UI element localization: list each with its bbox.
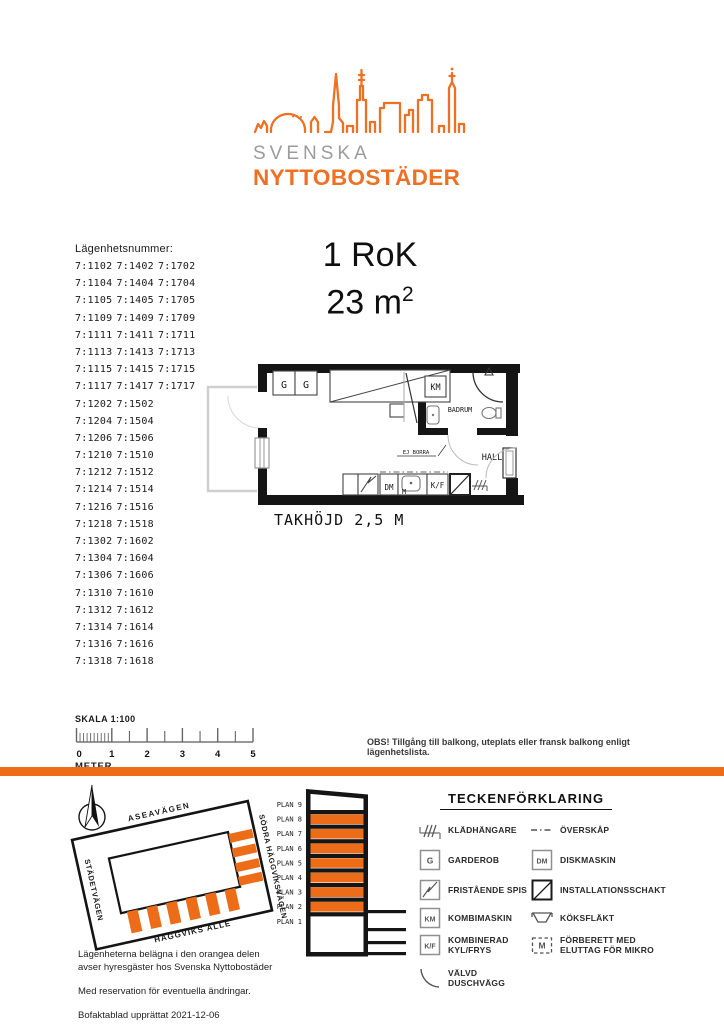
apartment-number: 7:1612 — [117, 605, 159, 622]
orange-divider — [0, 767, 724, 776]
apartment-row: 7:13167:1616 — [75, 639, 205, 656]
logo-text-svenska: SVENSKA — [253, 143, 469, 165]
apartment-row: 7:12067:1506 — [75, 433, 205, 450]
box-diagonal-icon — [530, 878, 554, 902]
legend-item: KMKOMBIMASKIN — [418, 906, 534, 930]
apartment-number: 7:1402 — [117, 261, 159, 278]
svg-text:K/F: K/F — [431, 481, 445, 490]
badrum-label: BADRUM — [448, 406, 473, 414]
apartment-number: 7:1506 — [117, 433, 159, 450]
apartment-number: 7:1214 — [75, 484, 117, 501]
apartment-number: 7:1318 — [75, 656, 117, 673]
legend-item: MFÖRBERETT MED ELUTTAG FÖR MIKRO — [530, 933, 678, 957]
footer-note-orange: Lägenheterna belägna i den orangea delen… — [78, 948, 318, 974]
apartment-number: 7:1113 — [75, 347, 117, 364]
legend-item: KLÄDHÄNGARE — [418, 818, 534, 842]
apartment-number: 7:1604 — [117, 553, 159, 570]
svg-text:G: G — [281, 380, 287, 391]
apartment-row: 7:12107:1510 — [75, 450, 205, 467]
apartment-row: 7:12127:1512 — [75, 467, 205, 484]
floor-bar — [311, 873, 364, 883]
apartment-number: 7:1212 — [75, 467, 117, 484]
hanger-icon — [418, 818, 442, 842]
floor-bar — [311, 902, 364, 912]
apartment-number: 7:1316 — [75, 639, 117, 656]
plan-label: PLAN 1 — [277, 918, 302, 926]
legend: TECKENFÖRKLARING KLÄDHÄNGAREGGARDEROBFRI… — [416, 790, 678, 990]
svg-text:M: M — [402, 488, 406, 496]
apartment-row: 7:13127:1612 — [75, 605, 205, 622]
apartment-row: 7:12147:1514 — [75, 484, 205, 501]
legend-item-label: VÄLVD DUSCHVÄGG — [448, 968, 534, 989]
kitchen-units: DM M K/F — [343, 472, 487, 496]
apartment-number: 7:1705 — [158, 295, 200, 312]
legend-item-label: ÖVERSKÅP — [560, 825, 678, 836]
legend-item-label: DISKMASKIN — [560, 855, 678, 866]
apartment-row: 7:11157:14157:1715 — [75, 364, 205, 381]
block-outline — [72, 801, 272, 949]
apartment-row: 7:13147:1614 — [75, 622, 205, 639]
highlighted-building-stripes — [115, 829, 268, 934]
apartment-row: 7:11117:14117:1711 — [75, 330, 205, 347]
apartment-number: 7:1411 — [117, 330, 159, 347]
ej-borra-note: EJ BORRA — [397, 445, 446, 456]
apartment-number: 7:1616 — [117, 639, 159, 656]
site-map: ASEAVÄGEN HÄGGVIKS ALLÉ SÖDRA HÄGGVIKSVÄ… — [58, 783, 288, 961]
apartment-row: 7:11047:14047:1704 — [75, 278, 205, 295]
footer-note-date: Bofaktablad upprättat 2021-12-06 — [78, 1009, 318, 1022]
floor-plan: G G KM BADRUM HALL — [200, 360, 545, 512]
apartment-number: 7:1115 — [75, 364, 117, 381]
legend-item: FRISTÅENDE SPIS — [418, 878, 534, 902]
apartment-number: 7:1111 — [75, 330, 117, 347]
legend-item-label: KOMBINERAD KYL/FRYS — [448, 935, 534, 956]
footer-notes: Lägenheterna belägna i den orangea delen… — [78, 948, 318, 1024]
arc-icon — [418, 966, 442, 990]
apartment-number: 7:1218 — [75, 519, 117, 536]
svg-text:EJ BORRA: EJ BORRA — [403, 450, 430, 456]
legend-item: KÖKSFLÄKT — [530, 906, 678, 930]
logo-text-nyttobostader: NYTTOBOSTÄDER — [253, 165, 469, 191]
legend-item-label: KÖKSFLÄKT — [560, 913, 678, 924]
apartment-number: 7:1709 — [158, 313, 200, 330]
apartment-number-rows: 7:11027:14027:17027:11047:14047:17047:11… — [75, 261, 205, 674]
apartment-number: 7:1204 — [75, 416, 117, 433]
apartment-row: 7:11027:14027:1702 — [75, 261, 205, 278]
unit-title: 1 RoK 23 m2 — [250, 236, 490, 322]
scale-tick-label: 3 — [180, 749, 185, 760]
apartment-number: 7:1711 — [158, 330, 200, 347]
ceiling-height-note: TAKHÖJD 2,5 M — [274, 511, 404, 529]
legend-glyph: DM — [537, 859, 548, 866]
scale-tick-label: 1 — [109, 749, 115, 760]
legend-item: GGARDEROB — [418, 848, 534, 872]
apartment-number: 7:1614 — [117, 622, 159, 639]
apartment-number: 7:1304 — [75, 553, 117, 570]
apartment-number: 7:1717 — [158, 381, 200, 398]
apartment-number: 7:1310 — [75, 588, 117, 605]
company-logo: SVENSKA NYTTOBOSTÄDER — [253, 60, 469, 191]
apartment-number: 7:1409 — [117, 313, 159, 330]
svg-text:G: G — [303, 380, 309, 391]
building-elevation: PLAN 9PLAN 8PLAN 7PLAN 6PLAN 5PLAN 4PLAN… — [276, 786, 408, 962]
apartment-number: 7:1504 — [117, 416, 159, 433]
wardrobe-boxes: G G — [273, 371, 317, 395]
apartment-number: 7:1413 — [117, 347, 159, 364]
plan-label: PLAN 3 — [277, 889, 302, 897]
apartment-row: 7:13027:1602 — [75, 536, 205, 553]
apartment-number: 7:1105 — [75, 295, 117, 312]
footer-note-reservation: Med reservation för eventuella ändringar… — [78, 985, 318, 998]
hall-label: HALL — [482, 453, 502, 463]
apartment-row: 7:12187:1518 — [75, 519, 205, 536]
apartment-number: 7:1102 — [75, 261, 117, 278]
apartment-number: 7:1713 — [158, 347, 200, 364]
apartment-row: 7:12027:1502 — [75, 399, 205, 416]
svg-text:KM: KM — [430, 383, 440, 393]
scale-tick-label: 4 — [215, 749, 221, 760]
apartment-number: 7:1417 — [117, 381, 159, 398]
scale-tick-label: 5 — [250, 749, 256, 760]
apartment-row: 7:13047:1604 — [75, 553, 205, 570]
floor-bar — [311, 829, 364, 839]
apartment-number: 7:1306 — [75, 570, 117, 587]
washer-box: KM — [425, 376, 446, 397]
hood-icon — [530, 906, 554, 930]
apartment-number: 7:1510 — [117, 450, 159, 467]
box-icon: G — [418, 848, 442, 872]
apartment-number: 7:1216 — [75, 502, 117, 519]
apartment-number: 7:1104 — [75, 278, 117, 295]
legend-item: INSTALLATIONSSCHAKT — [530, 878, 678, 902]
legend-item-label: KOMBIMASKIN — [448, 913, 534, 924]
apartment-row: 7:13067:1606 — [75, 570, 205, 587]
balcony-outline — [208, 387, 257, 491]
apartment-number: 7:1206 — [75, 433, 117, 450]
apartment-number-list: Lägenhetsnummer: 7:11027:14027:17027:110… — [75, 243, 205, 674]
sink — [427, 406, 439, 424]
apartment-number: 7:1610 — [117, 588, 159, 605]
apartment-number: 7:1202 — [75, 399, 117, 416]
floor-bar — [311, 844, 364, 854]
apartment-number: 7:1312 — [75, 605, 117, 622]
apartment-number: 7:1109 — [75, 313, 117, 330]
legend-item: VÄLVD DUSCHVÄGG — [418, 966, 534, 990]
street-bottom: HÄGGVIKS ALLÉ — [153, 919, 232, 945]
apartment-number: 7:1502 — [117, 399, 159, 416]
legend-item-label: FRISTÅENDE SPIS — [448, 885, 534, 896]
scale-label: SKALA 1:100 — [75, 714, 136, 724]
apartment-row: 7:11097:14097:1709 — [75, 313, 205, 330]
floor-bar — [311, 887, 364, 897]
toilet — [482, 408, 501, 419]
legend-glyph: K/F — [424, 944, 436, 951]
unit-rooms: 1 RoK — [250, 236, 490, 275]
balcony-door-arc — [228, 396, 260, 428]
unit-area: 23 m2 — [250, 275, 490, 322]
plan-label: PLAN 5 — [277, 859, 302, 867]
coat-hanger-symbol — [472, 480, 487, 491]
apartment-number: 7:1606 — [117, 570, 159, 587]
apartment-number: 7:1117 — [75, 381, 117, 398]
shower — [473, 368, 503, 402]
plan-label: PLAN 4 — [277, 874, 302, 882]
scale-tick-label: 0 — [77, 749, 82, 760]
dashdot-icon — [530, 818, 554, 842]
apartment-number: 7:1404 — [117, 278, 159, 295]
apartment-row: 7:13107:1610 — [75, 588, 205, 605]
legend-item-label: INSTALLATIONSSCHAKT — [560, 885, 678, 896]
box-icon: K/F — [418, 933, 442, 957]
apartment-number: 7:1405 — [117, 295, 159, 312]
compass-icon — [79, 785, 105, 830]
apartment-number: 7:1514 — [117, 484, 159, 501]
floor-bar — [311, 814, 364, 824]
legend-glyph: KM — [425, 917, 436, 924]
legend-item: K/FKOMBINERAD KYL/FRYS — [418, 933, 534, 957]
apartment-row: 7:12047:1504 — [75, 416, 205, 433]
scale-tick-label: 2 — [144, 749, 149, 760]
window — [255, 438, 269, 468]
apartment-number: 7:1512 — [117, 467, 159, 484]
bathroom-door-arc — [448, 435, 478, 465]
plan-label: PLAN 8 — [277, 816, 302, 824]
building-ring — [109, 832, 240, 913]
floor-bar — [311, 858, 364, 868]
apartment-number: 7:1704 — [158, 278, 200, 295]
box-icon: DM — [530, 848, 554, 872]
legend-item: DMDISKMASKIN — [530, 848, 678, 872]
balcony-note: OBS! Tillgång till balkong, uteplats ell… — [367, 737, 667, 757]
legend-glyph: M — [538, 941, 545, 951]
legend-item-label: KLÄDHÄNGARE — [448, 825, 534, 836]
legend-glyph: G — [427, 856, 434, 866]
apartment-row: 7:11057:14057:1705 — [75, 295, 205, 312]
plan-label: PLAN 6 — [277, 845, 302, 853]
plan-label: PLAN 7 — [277, 830, 302, 838]
apartment-number: 7:1210 — [75, 450, 117, 467]
box-icon: KM — [418, 906, 442, 930]
street-left: STÄDETVÄGEN — [83, 858, 105, 922]
apartment-number: 7:1516 — [117, 502, 159, 519]
apartment-number: 7:1302 — [75, 536, 117, 553]
apartment-number: 7:1415 — [117, 364, 159, 381]
apartment-number: 7:1518 — [117, 519, 159, 536]
svg-text:DM: DM — [384, 483, 394, 492]
box-m-dashed-icon: M — [530, 933, 554, 957]
apartment-number: 7:1314 — [75, 622, 117, 639]
legend-item: ÖVERSKÅP — [530, 818, 678, 842]
apartment-number: 7:1618 — [117, 656, 159, 673]
legend-item-label: GARDEROB — [448, 855, 534, 866]
legend-item-label: FÖRBERETT MED ELUTTAG FÖR MIKRO — [560, 935, 678, 956]
plan-label: PLAN 2 — [277, 903, 302, 911]
box-zigzag-icon — [418, 878, 442, 902]
apartment-list-heading: Lägenhetsnummer: — [75, 243, 205, 255]
apartment-row: 7:12167:1516 — [75, 502, 205, 519]
legend-title: TECKENFÖRKLARING — [440, 791, 612, 810]
apartment-number: 7:1702 — [158, 261, 200, 278]
apartment-row: 7:13187:1618 — [75, 656, 205, 673]
apartment-number: 7:1602 — [117, 536, 159, 553]
scale-ruler: 012345 — [75, 726, 259, 762]
plan-label: PLAN 9 — [277, 801, 302, 809]
skyline-icon — [253, 60, 467, 136]
apartment-row: 7:11177:14177:1717 — [75, 381, 205, 398]
bofaktablad-page: SVENSKA NYTTOBOSTÄDER Lägenhetsnummer: 7… — [0, 0, 724, 1024]
apartment-row: 7:11137:14137:1713 — [75, 347, 205, 364]
apartment-number: 7:1715 — [158, 364, 200, 381]
